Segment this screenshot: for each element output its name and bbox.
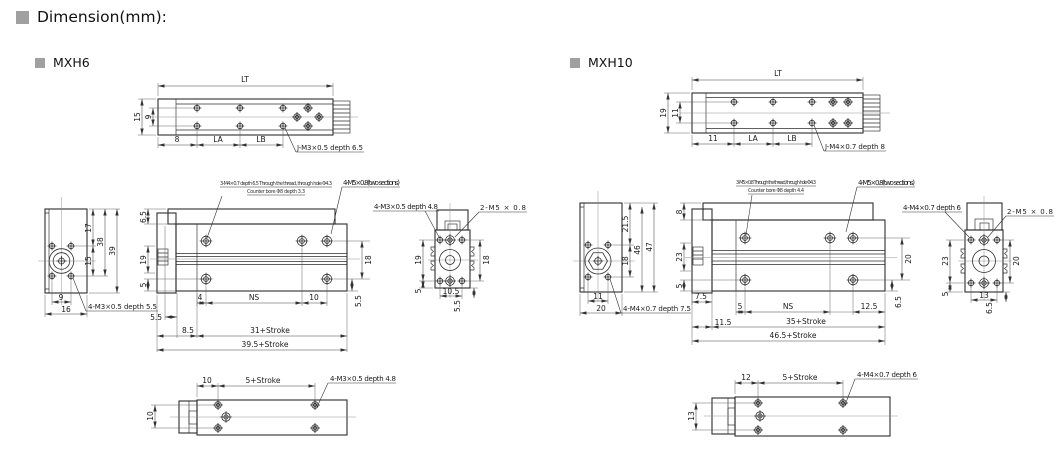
leader-m4-depth6: 4-M4×0.7 depth 6 xyxy=(903,204,962,212)
leader-bottom-thread10: 4-M4×0.7 depth 6 xyxy=(857,371,918,379)
dim-6_5: 6.5 xyxy=(139,211,148,223)
mxh6-side-view: 6.5 19 5 18 5.5 4 NS 10 5.5 8.5 31+Strok… xyxy=(139,179,400,352)
leader-2m5-10: 2-M5 × 0.8 xyxy=(1007,208,1053,216)
dim-8: 8 xyxy=(175,135,180,144)
mxh10-side-view: 8 23 5 20 6.5 7.5 5 NS 12.5 11.5 35+Stro… xyxy=(675,179,915,345)
dim-18p: 18 xyxy=(482,255,491,265)
dim-6_5p: 6.5 xyxy=(985,302,994,314)
dim-ns10: NS xyxy=(783,302,794,311)
dim-38: 38 xyxy=(96,237,105,247)
dim-10b: 10 xyxy=(202,376,212,385)
dim-6_5r: 6.5 xyxy=(894,296,903,308)
dim-47: 47 xyxy=(645,242,654,252)
dim-5_5l: 5.5 xyxy=(150,313,162,322)
dimension-drawing-canvas: LT 15 9 8 LA LB J-M3×0.5 depth 6.5 17 15… xyxy=(0,0,1063,449)
dim-11e: 11 xyxy=(593,292,603,301)
dim-19s: 19 xyxy=(139,255,148,265)
dim-15: 15 xyxy=(133,112,142,122)
dim-lb10: LB xyxy=(787,134,796,143)
dim-13p: 13 xyxy=(979,291,989,300)
leader-m3-depth48: 4-M3×0.5 depth 4.8 xyxy=(374,203,438,211)
mxh6-bottom-view: 10 5+Stroke 4-M3×0.5 depth 4.8 10 xyxy=(146,375,396,435)
note-line1: 3-M4×0.7 depth 6.5 Through the thread, t… xyxy=(220,181,332,187)
dim-46: 46 xyxy=(633,245,642,255)
dim-12b: 12 xyxy=(741,373,751,382)
dim-9: 9 xyxy=(144,114,153,119)
dim-18s: 18 xyxy=(364,255,373,265)
ports-label: 4-M5×0.8(two sections) xyxy=(343,179,400,187)
dim-10_5: 10.5 xyxy=(443,287,460,296)
dim-20s: 20 xyxy=(904,254,913,264)
dim-11_5: 11.5 xyxy=(715,318,732,327)
dim-5s10: 5 xyxy=(675,283,684,288)
ports-label-10: 4-M5×0.8(two sections) xyxy=(858,179,915,187)
dim-5p: 5 xyxy=(414,288,423,293)
dim-5-stroke10: 5+Stroke xyxy=(783,373,818,382)
dim-20p: 20 xyxy=(1012,256,1021,266)
dim-5p10: 5 xyxy=(941,291,950,296)
dim-19p: 19 xyxy=(414,255,423,265)
dim-10s: 10 xyxy=(309,293,319,302)
dim-5i10: 5 xyxy=(738,302,743,311)
dim-8_5: 8.5 xyxy=(182,326,194,335)
dim-31-stroke: 31+Stroke xyxy=(250,326,290,335)
mxh10-bottom-view: 12 5+Stroke 4-M4×0.7 depth 6 13 xyxy=(687,371,918,436)
mxh10-port-view: 23 5 20 13 6.5 4-M4×0.7 depth 6 2-M5 × 0… xyxy=(902,196,1054,314)
dim-4: 4 xyxy=(198,293,203,302)
leader-2m5: 2-M5 × 0.8 xyxy=(480,204,526,212)
dim-12_5: 12.5 xyxy=(861,302,878,311)
dim-20e: 20 xyxy=(596,304,606,313)
dim-5_5r: 5.5 xyxy=(354,295,363,307)
dim-5-stroke: 5+Stroke xyxy=(246,376,281,385)
dim-16: 16 xyxy=(61,305,71,314)
dim-9b: 9 xyxy=(59,293,64,302)
mxh10-top-view: LT 19 11 11 LA LB J-M4×0.7 depth 8 xyxy=(659,69,890,151)
dim-23s: 23 xyxy=(675,252,684,262)
dim-5s: 5 xyxy=(139,282,148,287)
leader-end-thread: 4-M3×0.5 depth 5.5 xyxy=(88,303,157,311)
dim-11b: 11 xyxy=(708,134,718,143)
dim-39: 39 xyxy=(108,246,117,256)
leader-end-thread10: 4-M4×0.7 depth 7.5 xyxy=(623,305,691,313)
dim-la: LA xyxy=(213,135,223,144)
mxh10-end-view: 21.5 18 46 47 11 20 4-M4×0.7 depth 7.5 xyxy=(573,191,691,316)
leader-bottom-thread: 4-M3×0.5 depth 4.8 xyxy=(330,375,396,383)
dim-39_5-stroke: 39.5+Stroke xyxy=(242,340,289,349)
dim-46_5-stroke: 46.5+Stroke xyxy=(770,331,817,340)
dim-13bl: 13 xyxy=(687,411,696,421)
dim-10bl: 10 xyxy=(146,411,155,421)
dim-23p: 23 xyxy=(941,256,950,266)
mxh6-top-view: LT 15 9 8 LA LB J-M3×0.5 depth 6.5 xyxy=(133,75,364,152)
dim-21_5: 21.5 xyxy=(621,215,630,232)
dim-15i: 15 xyxy=(84,256,93,266)
note-line1-10: 3-M5×0.8 Through the thread, through hol… xyxy=(736,180,816,186)
dim-la10: LA xyxy=(748,134,758,143)
note-line2-10: Counter bore Φ8 depth 4.4 xyxy=(748,188,804,194)
leader-j-thread10: J-M4×0.7 depth 8 xyxy=(824,143,885,151)
dim-18e: 18 xyxy=(621,256,630,266)
dim-ns: NS xyxy=(249,293,260,302)
note-line2: Counter bore Φ8 depth 3.3 xyxy=(247,189,305,195)
dim-8s10: 8 xyxy=(675,209,684,214)
dim-lt10: LT xyxy=(774,69,782,78)
leader-j-thread: J-M3×0.5 depth 6.5 xyxy=(296,144,363,152)
mxh6-port-view: 19 5 18 10.5 5.5 4-M3×0.5 depth 4.8 2-M5… xyxy=(373,203,527,312)
dim-7_5: 7.5 xyxy=(695,292,707,301)
dim-17: 17 xyxy=(84,223,93,233)
dim-lb: LB xyxy=(256,135,265,144)
dim-19t: 19 xyxy=(659,108,668,118)
dim-11t: 11 xyxy=(671,108,680,118)
dim-35-stroke: 35+Stroke xyxy=(786,317,826,326)
dim-5_5p: 5.5 xyxy=(453,300,462,312)
dim-lt: LT xyxy=(241,75,249,84)
